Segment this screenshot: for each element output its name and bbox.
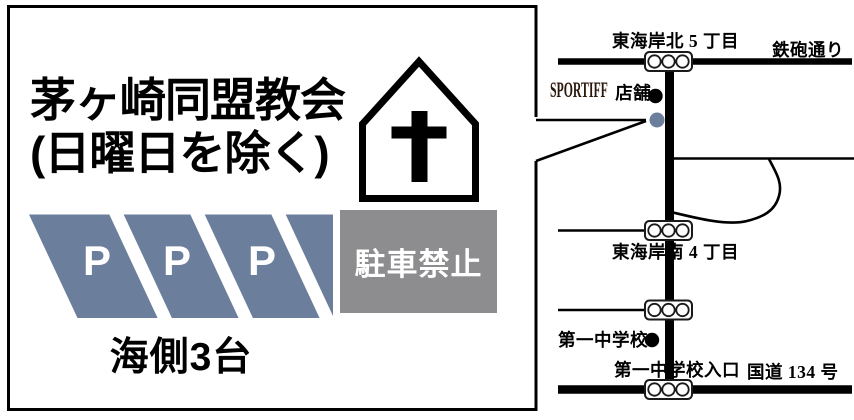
traffic-light-icon-school [645,301,692,320]
road-curve [671,159,780,223]
church-location-dot [650,113,665,128]
no-parking-sign: 駐車禁止 [340,210,497,313]
church-access-map: 茅ヶ崎同盟教会 (日曜日を除く) P P P 駐車禁止 海側3台 東海岸北 5 … [0,0,854,420]
traffic-light-icon-route134 [645,380,692,399]
church-cross [412,111,428,182]
panel-title: 茅ヶ崎同盟教会 (日曜日を除く) [30,74,345,180]
traffic-light-icon-south [645,221,692,240]
parking-p-2: P [163,240,191,282]
parking-p-3: P [248,240,276,282]
sportiff-store-name: SPORTIFF [550,79,608,103]
schedule-note: (日曜日を除く) [30,127,345,180]
label-school-entrance: 第一中学校入口 [614,360,740,381]
label-school: 第一中学校 [558,330,648,351]
label-sportiff-store: SPORTIFF 店舗 [550,83,651,103]
church-icon [363,62,476,199]
label-route-134: 国道 134 号 [747,362,839,383]
sportiff-store-suffix: 店舗 [615,83,651,103]
no-parking-label: 駐車禁止 [355,239,483,284]
label-teppo-street: 鉄砲通り [772,40,844,61]
church-name: 茅ヶ崎同盟教会 [30,74,345,127]
church-cross-bar [392,127,447,139]
parking-p-1: P [83,240,111,282]
callout-pointer [536,120,646,161]
label-south-intersection: 東海岸南 4 丁目 [612,242,739,263]
capacity-note: 海側3台 [29,326,333,382]
label-north-intersection: 東海岸北 5 丁目 [612,31,739,52]
traffic-light-icon-north [645,52,692,71]
